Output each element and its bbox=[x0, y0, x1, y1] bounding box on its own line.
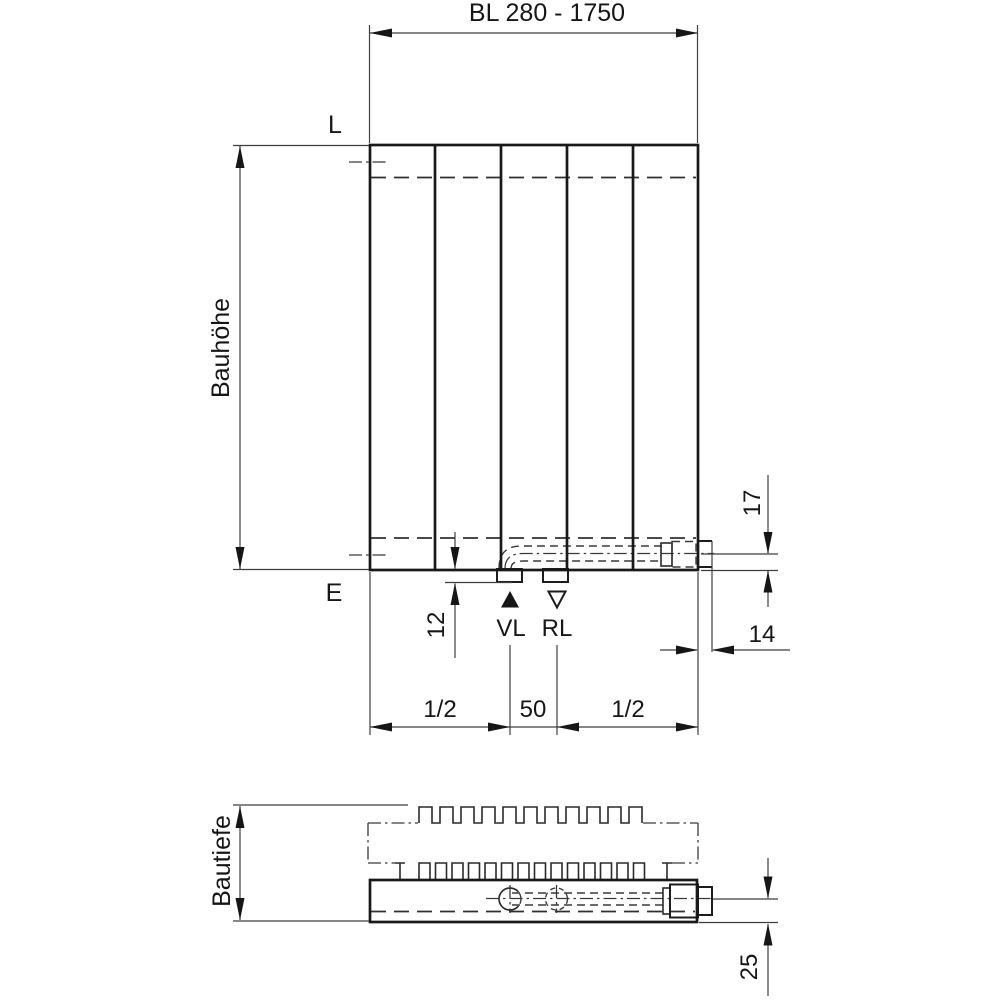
arrowhead bbox=[557, 723, 579, 732]
left-span-text: 1/2 bbox=[423, 696, 456, 723]
fitting-body-top bbox=[670, 885, 698, 918]
fitting-nut-front bbox=[661, 543, 672, 566]
connection-level-labels: L E bbox=[326, 111, 343, 607]
arrowhead bbox=[712, 646, 734, 655]
pipe-wall-top bbox=[499, 546, 662, 569]
height-label: Bauhöhe bbox=[207, 298, 235, 398]
fin-row-lower bbox=[419, 863, 645, 880]
pipe-wall-bottom bbox=[511, 561, 662, 569]
dim-stub-projection: 14 bbox=[660, 541, 790, 655]
arrowhead bbox=[236, 806, 245, 828]
dim-pipe-axis-depth: 25 bbox=[699, 858, 778, 996]
arrowhead bbox=[236, 146, 245, 168]
tab-drop-text: 12 bbox=[423, 612, 450, 639]
arrowhead bbox=[676, 723, 698, 732]
arrowhead bbox=[764, 532, 773, 554]
extension-lines bbox=[699, 899, 778, 923]
arrowhead bbox=[488, 723, 510, 732]
supply-label: VL bbox=[496, 615, 525, 642]
extension-lines bbox=[233, 805, 408, 921]
arrowhead bbox=[764, 924, 773, 946]
center-span-text: 50 bbox=[520, 696, 547, 723]
front-view-radiator bbox=[349, 145, 714, 582]
fin-end-plates bbox=[395, 863, 672, 880]
label-top-line-L: L bbox=[328, 111, 342, 139]
arrowhead bbox=[451, 547, 460, 569]
pipe-axis-text: 17 bbox=[739, 490, 766, 517]
supply-triangle-icon bbox=[501, 591, 519, 608]
arrowhead bbox=[451, 583, 460, 605]
dim-length: BL 280 - 1750 bbox=[370, 0, 699, 143]
arrowhead bbox=[764, 877, 773, 899]
extension-lines bbox=[233, 146, 369, 570]
arrowhead bbox=[236, 547, 245, 569]
fin-row-upper bbox=[419, 807, 642, 823]
label-bottom-line-E: E bbox=[326, 579, 343, 607]
arrowhead bbox=[676, 29, 698, 38]
radiator-outline bbox=[370, 145, 698, 570]
section-joint-lines bbox=[435, 145, 633, 570]
pipe-axis-depth-text: 25 bbox=[736, 954, 763, 981]
length-dimension-text: BL 280 - 1750 bbox=[469, 0, 625, 27]
drawing-canvas: BL 280 - 1750 Bauhöhe L E 12 VL RL 17 bbox=[0, 0, 1000, 1000]
top-view-radiator bbox=[368, 807, 714, 922]
fitting-body-front bbox=[672, 542, 696, 568]
fitting-nut-top bbox=[663, 888, 670, 914]
return-label: RL bbox=[542, 615, 573, 642]
radiator-technical-drawing: BL 280 - 1750 Bauhöhe L E 12 VL RL 17 bbox=[0, 0, 1000, 1000]
arrowhead bbox=[764, 571, 773, 593]
body-outline bbox=[370, 880, 697, 922]
arrowhead bbox=[370, 723, 392, 732]
right-span-text: 1/2 bbox=[611, 696, 644, 723]
fitting-stub-top bbox=[698, 887, 712, 915]
stub-projection-text: 14 bbox=[749, 621, 776, 648]
extension-lines bbox=[370, 25, 698, 143]
return-triangle-icon bbox=[549, 592, 566, 608]
dim-chain-bottom: 1/2 50 1/2 bbox=[370, 572, 698, 735]
arrowhead bbox=[236, 898, 245, 920]
arrowhead bbox=[370, 29, 392, 38]
dim-height: Bauhöhe bbox=[207, 146, 369, 570]
convector-envelope-centerline bbox=[368, 823, 698, 863]
depth-label: Bautiefe bbox=[208, 815, 236, 907]
arrowhead bbox=[676, 646, 698, 655]
